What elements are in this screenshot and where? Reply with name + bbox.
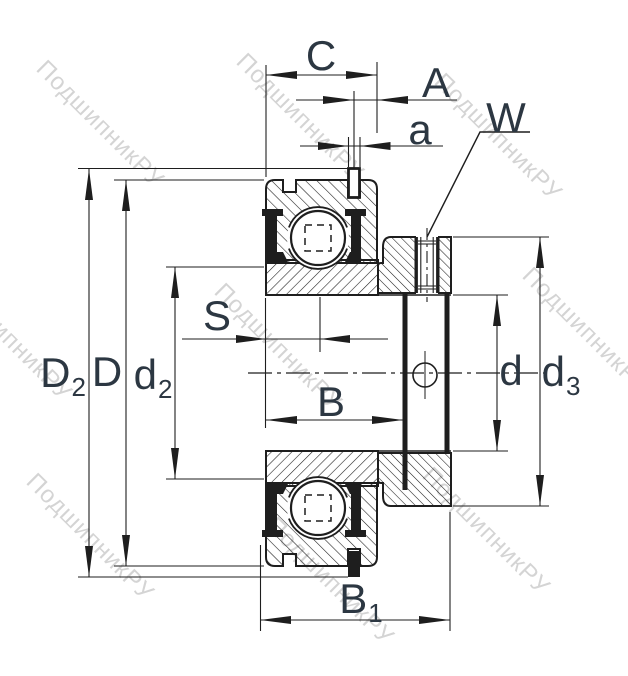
- dim-label-d3: d3: [542, 351, 581, 393]
- dim-label-d-bore: d: [499, 350, 522, 392]
- dim-label-d2-inner: d2: [134, 354, 173, 396]
- set-screw: [415, 228, 440, 302]
- dim-label-c: C: [306, 35, 336, 77]
- dim-label-w: W: [486, 97, 526, 139]
- dim-label-s: S: [203, 295, 231, 337]
- dim-label-a-upper: A: [422, 62, 450, 104]
- technical-drawing-page: ПодшипникРУ ПодшипникРУ ПодшипникРУ Подш…: [0, 0, 628, 676]
- bearing-cross-section-drawing: [0, 0, 628, 676]
- inner-ring-section: [266, 260, 378, 486]
- dim-label-d-outer: D: [92, 351, 122, 393]
- dim-label-b1: B1: [339, 578, 382, 620]
- dim-label-a-lower: a: [408, 109, 431, 151]
- dim-label-d2-outer: D2: [40, 352, 86, 394]
- dim-label-b: B: [317, 381, 345, 423]
